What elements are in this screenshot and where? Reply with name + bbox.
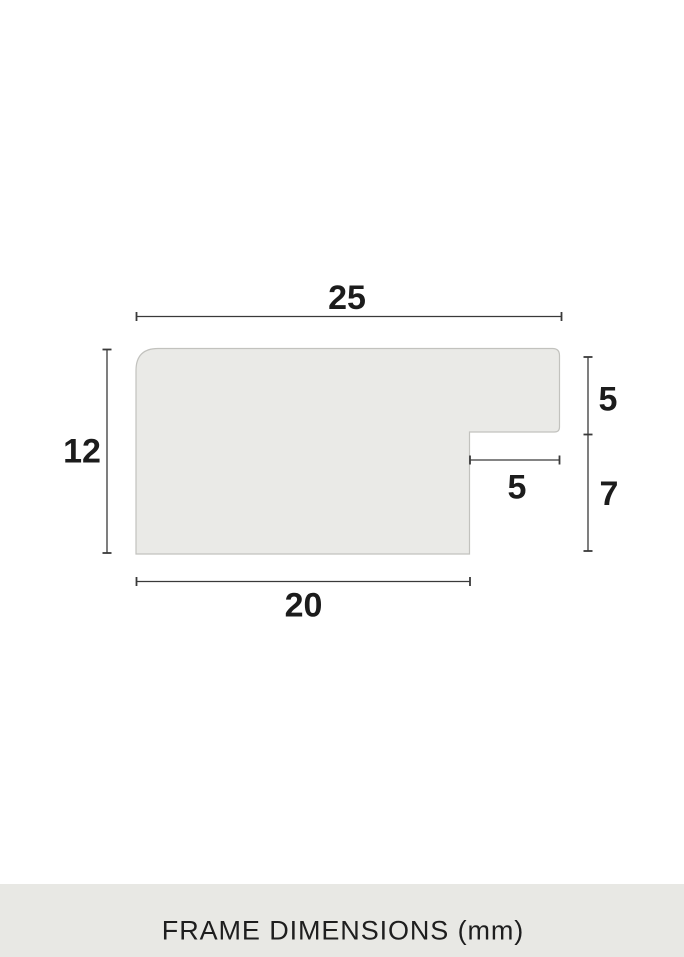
svg-text:5: 5 [508, 469, 527, 507]
svg-text:12: 12 [63, 433, 101, 471]
svg-text:5: 5 [599, 381, 618, 419]
svg-text:25: 25 [328, 279, 366, 317]
svg-text:20: 20 [285, 587, 323, 625]
svg-text:FRAME DIMENSIONS (mm): FRAME DIMENSIONS (mm) [162, 916, 524, 946]
svg-text:7: 7 [600, 475, 619, 513]
